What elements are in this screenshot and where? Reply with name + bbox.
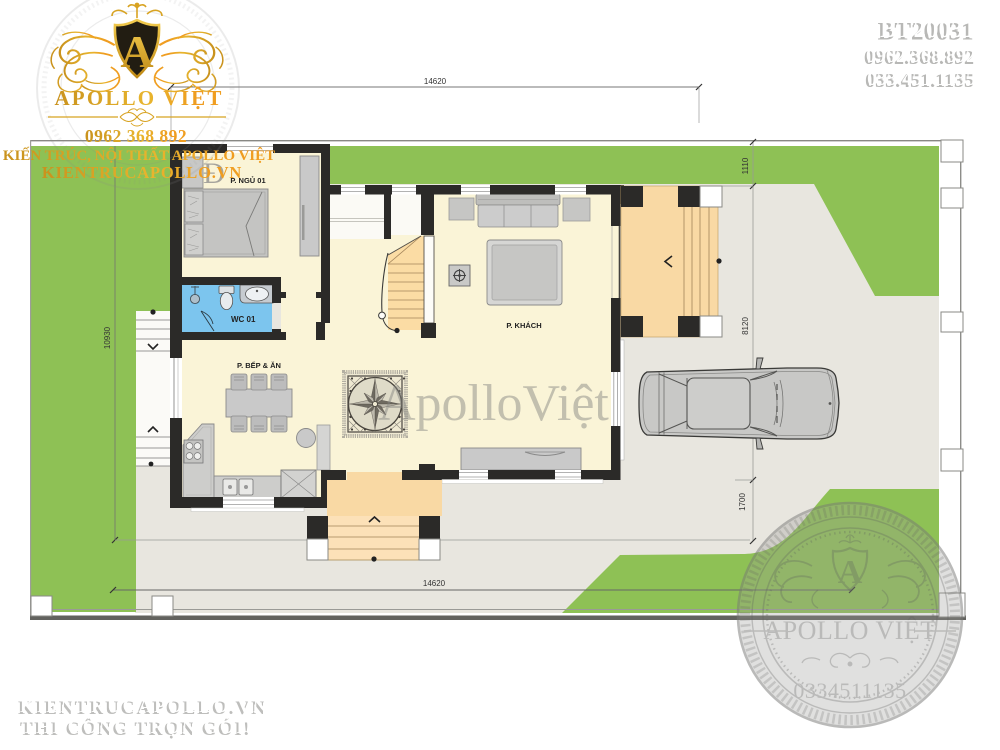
- svg-text:A: A: [120, 26, 153, 77]
- svg-text:APOLLO VIỆT: APOLLO VIỆT: [54, 86, 223, 110]
- svg-text:1110: 1110: [741, 157, 750, 174]
- svg-text:APOLLO VIỆT: APOLLO VIỆT: [763, 616, 936, 645]
- svg-text:033.451.1135: 033.451.1135: [867, 68, 976, 90]
- svg-text:0962.368.892: 0962.368.892: [866, 45, 976, 67]
- svg-text:KIẾN TRÚC, NỘI THẤT APOLLO VIỆ: KIẾN TRÚC, NỘI THẤT APOLLO VIỆT: [3, 147, 275, 164]
- svg-text:KIENTRUCAPOLLO.VN: KIENTRUCAPOLLO.VN: [42, 163, 242, 182]
- svg-text:0334511135: 0334511135: [793, 678, 906, 703]
- svg-text:10930: 10930: [103, 326, 112, 349]
- svg-text:14620: 14620: [423, 579, 446, 588]
- svg-text:1700: 1700: [738, 493, 747, 511]
- svg-text:BT20031: BT20031: [880, 16, 976, 43]
- svg-text:WC 01: WC 01: [231, 315, 256, 324]
- svg-text:P. BẾP & ĂN: P. BẾP & ĂN: [237, 360, 281, 370]
- svg-text:A: A: [838, 554, 863, 591]
- svg-text:0962 368 892: 0962 368 892: [85, 126, 187, 146]
- svg-text:THI CÔNG TRỌN GÓI!: THI CÔNG TRỌN GÓI!: [22, 716, 253, 738]
- svg-text:14620: 14620: [424, 77, 447, 86]
- svg-text:KIENTRUCAPOLLO.VN: KIENTRUCAPOLLO.VN: [20, 696, 269, 717]
- svg-text:P. KHÁCH: P. KHÁCH: [506, 321, 541, 330]
- svg-text:ApolloViệt: ApolloViệt: [378, 375, 609, 432]
- svg-text:8120: 8120: [741, 317, 750, 335]
